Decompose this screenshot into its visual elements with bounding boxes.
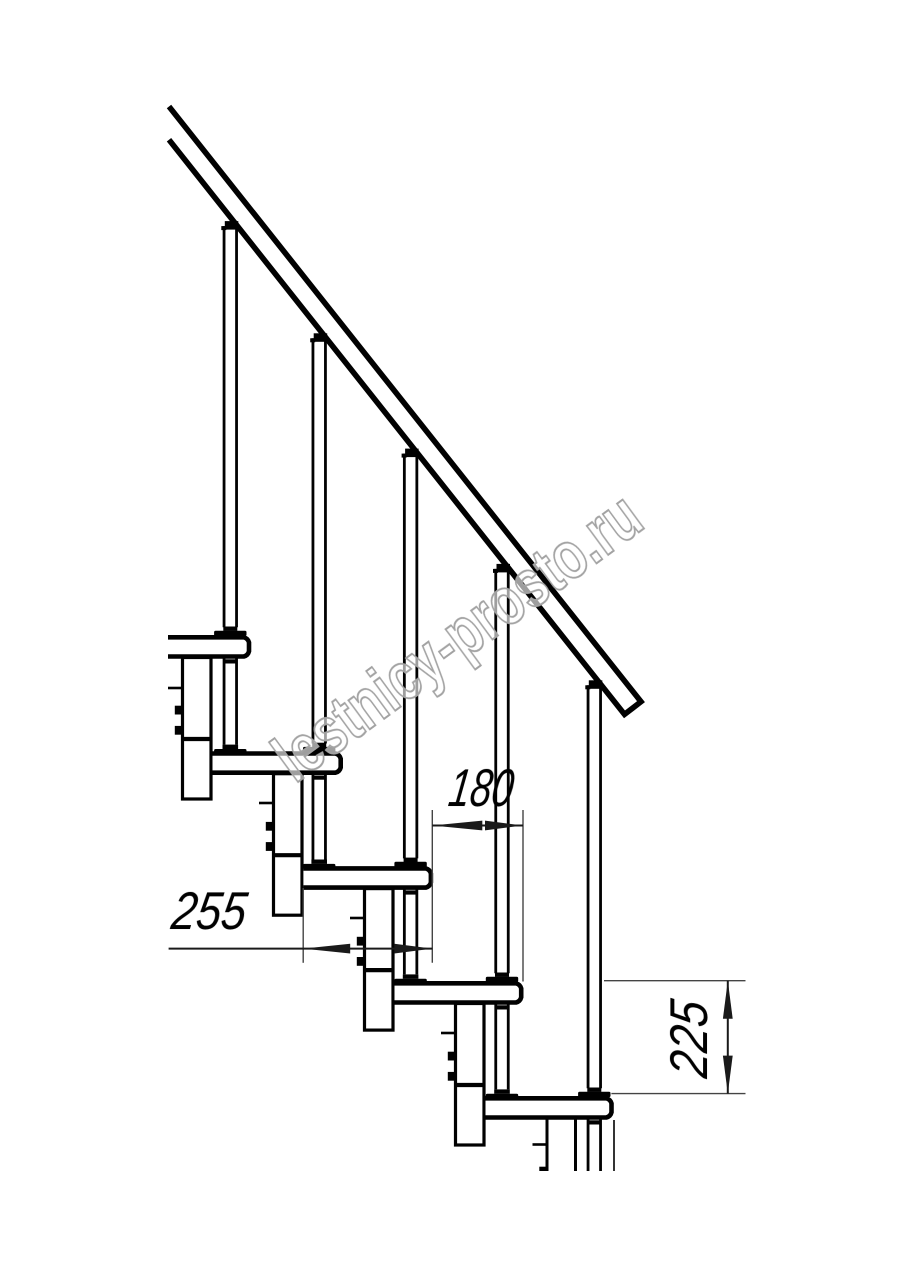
svg-text:255: 255	[167, 882, 250, 941]
svg-text:225: 225	[660, 996, 719, 1081]
svg-text:180: 180	[445, 759, 518, 818]
